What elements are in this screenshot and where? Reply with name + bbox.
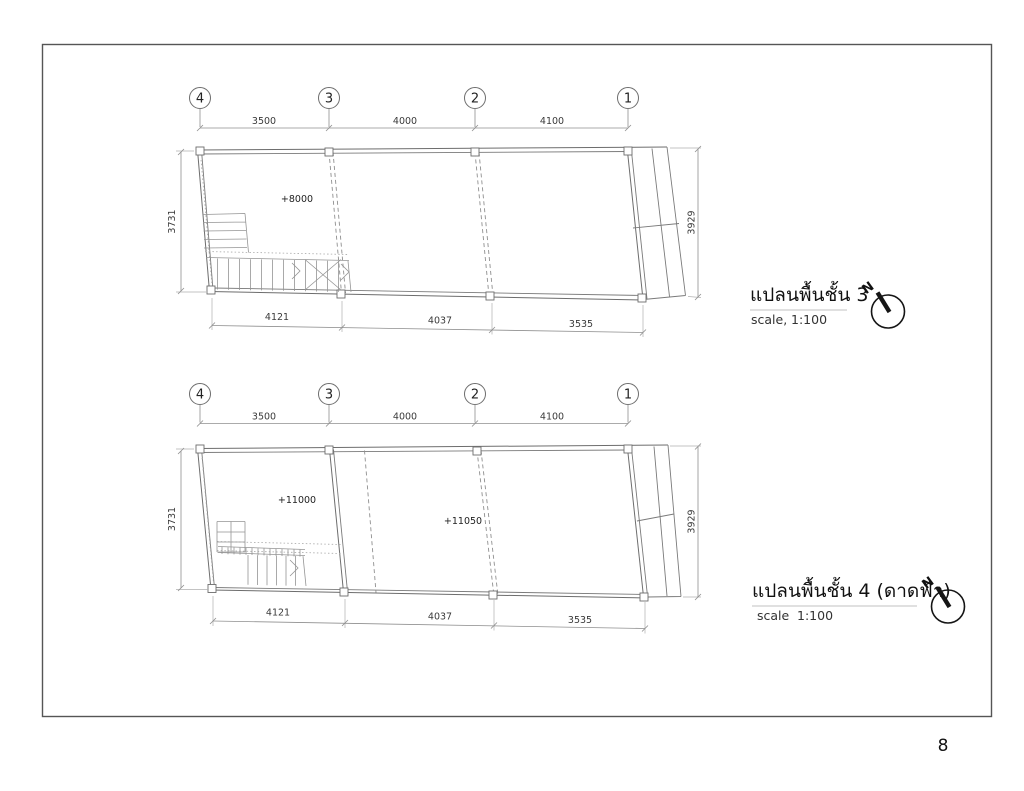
floor3-top-dimension: 3500 4000 4100 xyxy=(197,116,631,131)
floor3-bottom-dimension: 4121 4037 3535 xyxy=(209,298,646,337)
floor4-building-outline xyxy=(196,445,681,601)
drawing-sheet: 4 3 2 1 3500 4000 4100 xyxy=(0,0,1024,791)
page-number: 8 xyxy=(938,736,949,756)
floor4-plan: 4 3 2 1 3500 4000 4100 xyxy=(167,384,965,634)
grid-bubble-label: 2 xyxy=(471,388,479,403)
scale-value: 1:100 xyxy=(791,312,827,327)
dim-label: 4037 xyxy=(428,612,452,623)
floor4-title-block: แปลนพื้นชั้น 4 (ดาดฟ้า) scale 1:100 N xyxy=(752,574,965,623)
dim-label: 3731 xyxy=(167,209,178,233)
grid-bubble-label: 4 xyxy=(196,388,204,403)
dim-label: 4121 xyxy=(266,608,290,619)
dim-label: 4000 xyxy=(393,116,417,127)
grid-bubble-label: 2 xyxy=(471,92,479,107)
dim-label: 3500 xyxy=(252,116,276,127)
floor3-title-block: แปลนพื้นชั้น 3 scale, 1:100 N xyxy=(750,279,905,328)
dim-label: 3929 xyxy=(687,210,698,234)
dim-label: 3535 xyxy=(569,319,593,330)
floor4-stairs xyxy=(217,522,306,587)
scale-label: scale, xyxy=(751,312,787,327)
level-label: +8000 xyxy=(281,194,313,205)
level-label: +11050 xyxy=(444,516,482,527)
dim-label: 4037 xyxy=(428,316,452,327)
floor3-right-dimension: 3929 xyxy=(670,146,701,300)
grid-bubble-label: 1 xyxy=(624,388,632,403)
floor4-top-dimension: 3500 4000 4100 xyxy=(197,412,631,427)
floor3-building-outline xyxy=(196,147,686,302)
grid-bubble-label: 3 xyxy=(325,92,333,107)
floor3-left-dimension: 3731 xyxy=(167,149,206,294)
dim-label: 4100 xyxy=(540,116,564,127)
dim-label: 3500 xyxy=(252,412,276,423)
drawing-canvas: 4 3 2 1 3500 4000 4100 xyxy=(0,0,1024,791)
floor4-bottom-dimension: 4121 4037 3535 xyxy=(210,596,648,634)
grid-bubble-label: 1 xyxy=(624,92,632,107)
dim-label: 3731 xyxy=(167,507,178,531)
dim-label: 3929 xyxy=(687,509,698,533)
dim-label: 4121 xyxy=(265,312,289,323)
sheet-border xyxy=(43,45,992,717)
scale-label: scale xyxy=(757,608,790,623)
grid-bubble-label: 3 xyxy=(325,388,333,403)
floor3-plan: 4 3 2 1 3500 4000 4100 xyxy=(167,88,905,338)
dim-label: 4000 xyxy=(393,412,417,423)
floor4-left-dimension: 3731 xyxy=(167,448,208,591)
scale-value: 1:100 xyxy=(797,608,833,623)
dim-label: 4100 xyxy=(540,412,564,423)
level-label: +11000 xyxy=(278,495,316,506)
grid-bubble-label: 4 xyxy=(196,92,204,107)
plan-title: แปลนพื้นชั้น 3 xyxy=(750,281,868,306)
dim-label: 3535 xyxy=(568,615,592,626)
floor3-stairs xyxy=(203,214,351,293)
